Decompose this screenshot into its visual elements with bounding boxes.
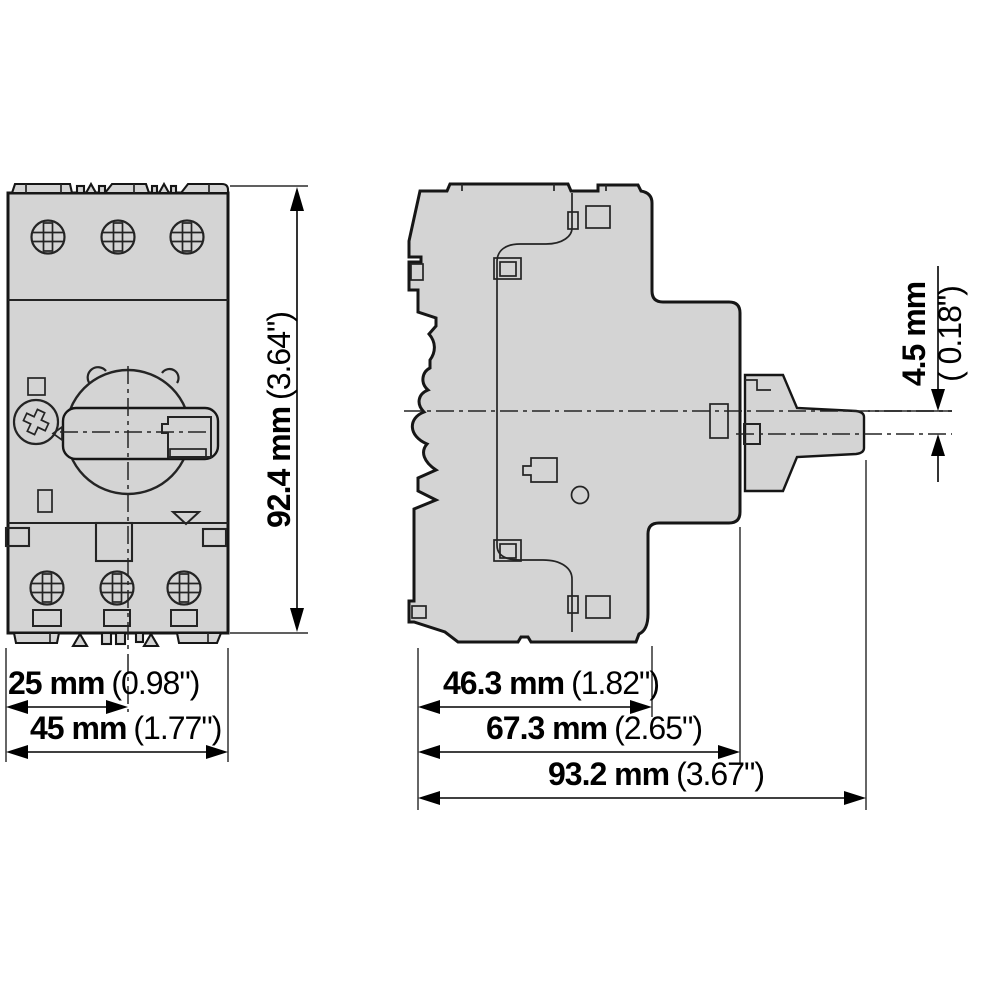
dim-value-inch: (3.67") [676,756,764,792]
dim-label-depth-46-3: 46.3 mm(1.82") [443,667,659,699]
dim-value-mm: 45 mm [30,710,126,746]
side-body-profile [409,184,740,642]
dim-label-width-45: 45 mm(1.77") [30,712,221,744]
dim-value-inch: (3.64") [261,312,297,400]
dim-value-mm: 46.3 mm [443,665,564,701]
side-knob-shaft [744,375,864,491]
dim-label-depth-67-3: 67.3 mm(2.65") [486,712,702,744]
dim-value-mm: 4.5 mm [896,282,932,386]
dim-value-mm: 92.4 mm [261,407,297,528]
dim-value-mm: 93.2 mm [548,756,669,792]
dim-value-inch: ( 0.18") [932,286,968,382]
dim-value-inch: (0.98") [111,665,199,701]
dim-label-depth-93-2: 93.2 mm(3.67") [548,758,764,790]
dim-label-mounting-width-25: 25 mm(0.98") [8,667,199,699]
dimension-drawing-canvas [0,0,1000,1000]
front-top-serrations [12,184,228,193]
front-view-drawing [6,184,228,712]
side-view-drawing [404,184,952,642]
dim-label-offset-4-5-mm: 4.5 mm [898,282,930,386]
dim-value-inch: (1.77") [133,710,221,746]
dim-value-mm: 25 mm [8,665,104,701]
dim-value-inch: (2.65") [614,710,702,746]
knob-handle [63,408,218,459]
dim-label-height-92-4: 92.4 mm(3.64") [263,312,295,528]
dim-value-mm: 67.3 mm [486,710,607,746]
dim-value-inch: (1.82") [571,665,659,701]
dim-label-offset-4-5-inch: ( 0.18") [934,286,966,382]
front-bottom-feet [14,633,221,646]
dimension-drawing-page: 92.4 mm(3.64") 25 mm(0.98") 45 mm(1.77")… [0,0,1000,1000]
